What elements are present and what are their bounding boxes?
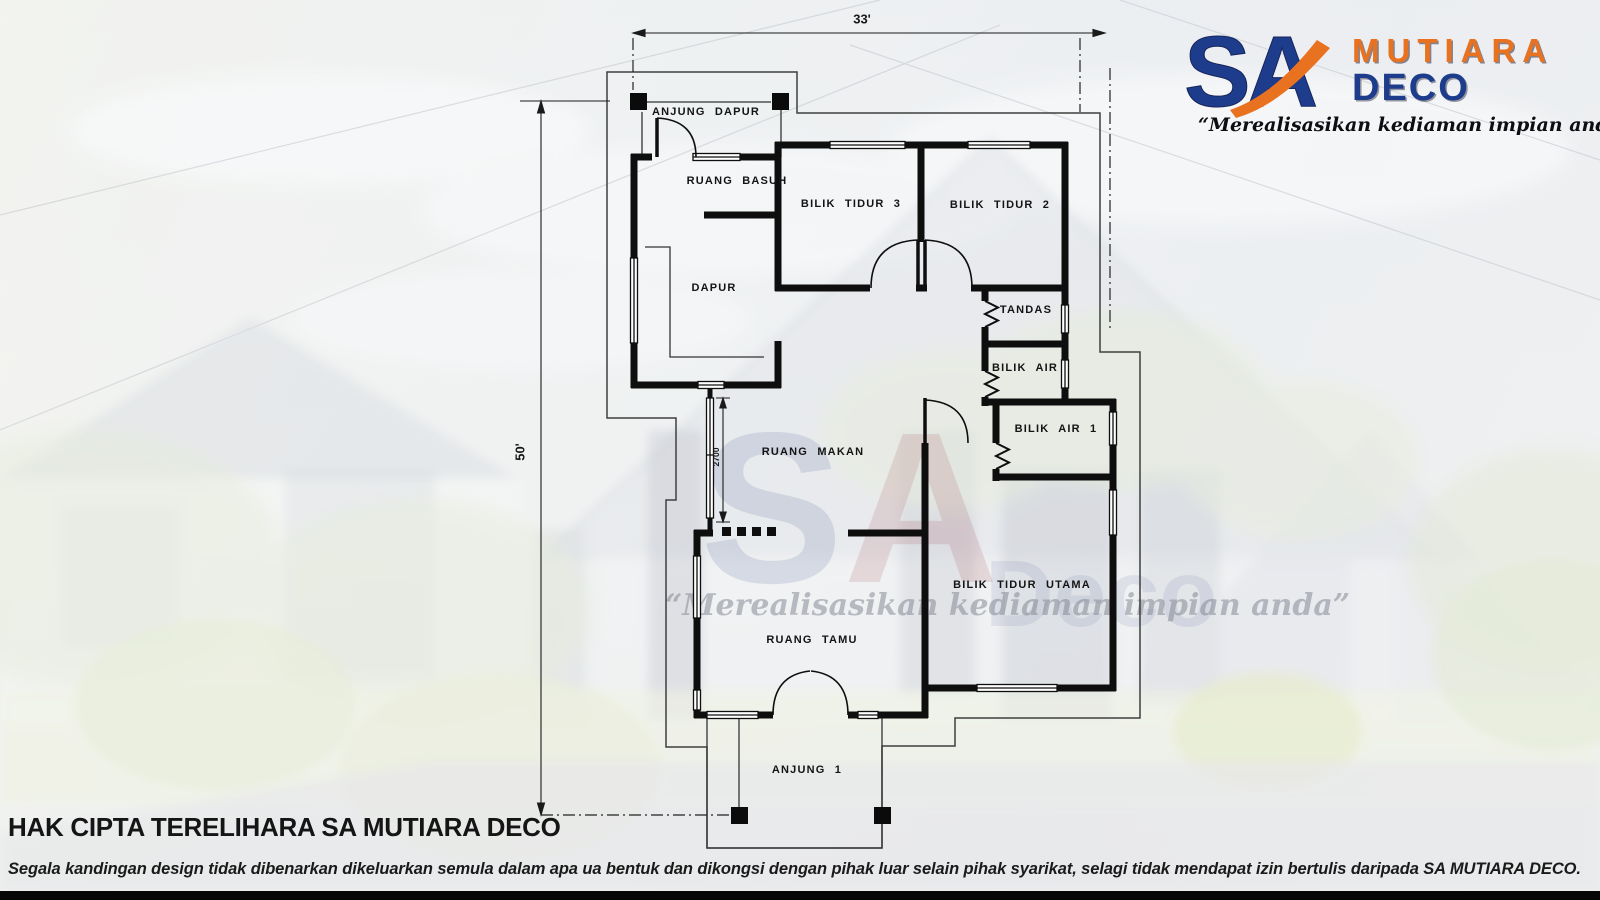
- room-label-bilik-air: BILIK AIR: [992, 362, 1058, 374]
- dashed-wall: [722, 527, 776, 536]
- disclaimer-text: Segala kandingan design tidak dibenarkan…: [8, 860, 1423, 878]
- room-label-ruang-tamu: RUANG TAMU: [766, 634, 857, 646]
- room-label-anjung-dapur: ANJUNG DAPUR: [652, 106, 760, 118]
- room-label-bilik-tidur-utama: BILIK TIDUR UTAMA: [953, 579, 1091, 591]
- room-label-tandas: TANDAS: [1000, 304, 1052, 316]
- dimension-height-label: 50': [513, 443, 528, 461]
- room-label-bilik-tidur-2: BILIK TIDUR 2: [950, 199, 1050, 211]
- roof-outline: [607, 72, 1140, 848]
- disclaimer-emphasis: SA MUTIARA DECO.: [1423, 860, 1581, 878]
- room-label-ruang-basuh: RUANG BASUH: [687, 175, 788, 187]
- copyright-heading: HAK CIPTA TERELIHARA SA MUTIARA DECO: [8, 812, 561, 843]
- room-label-dapur: DAPUR: [691, 282, 736, 294]
- sa-logo-mark: S A: [1184, 22, 1356, 122]
- room-label-bilik-air-1: BILIK AIR 1: [1015, 423, 1098, 435]
- room-label-ruang-makan: RUANG MAKAN: [762, 446, 865, 458]
- room-label-anjung-1: ANJUNG 1: [772, 764, 842, 776]
- brand-name-bottom: DECO: [1352, 67, 1470, 110]
- copyright-disclaimer: Segala kandingan design tidak dibenarkan…: [8, 860, 1596, 879]
- brand-name-top: MUTIARA: [1352, 32, 1553, 70]
- dimension-window-label: 2700: [711, 448, 721, 467]
- brand-logo: S A MUTIARA DECO “Merealisasikan kediama…: [1184, 20, 1584, 142]
- room-label-bilik-tidur-3: BILIK TIDUR 3: [801, 198, 901, 210]
- dimension-width-label: 33': [853, 12, 871, 27]
- bottom-black-bar: [0, 891, 1600, 900]
- folding-door-symbols: [985, 301, 1009, 469]
- brand-tagline: “Merealisasikan kediaman impian anda”: [1198, 114, 1578, 136]
- floor-plan-poster: SA Deco “Merealisasikan kediaman impian …: [0, 0, 1600, 900]
